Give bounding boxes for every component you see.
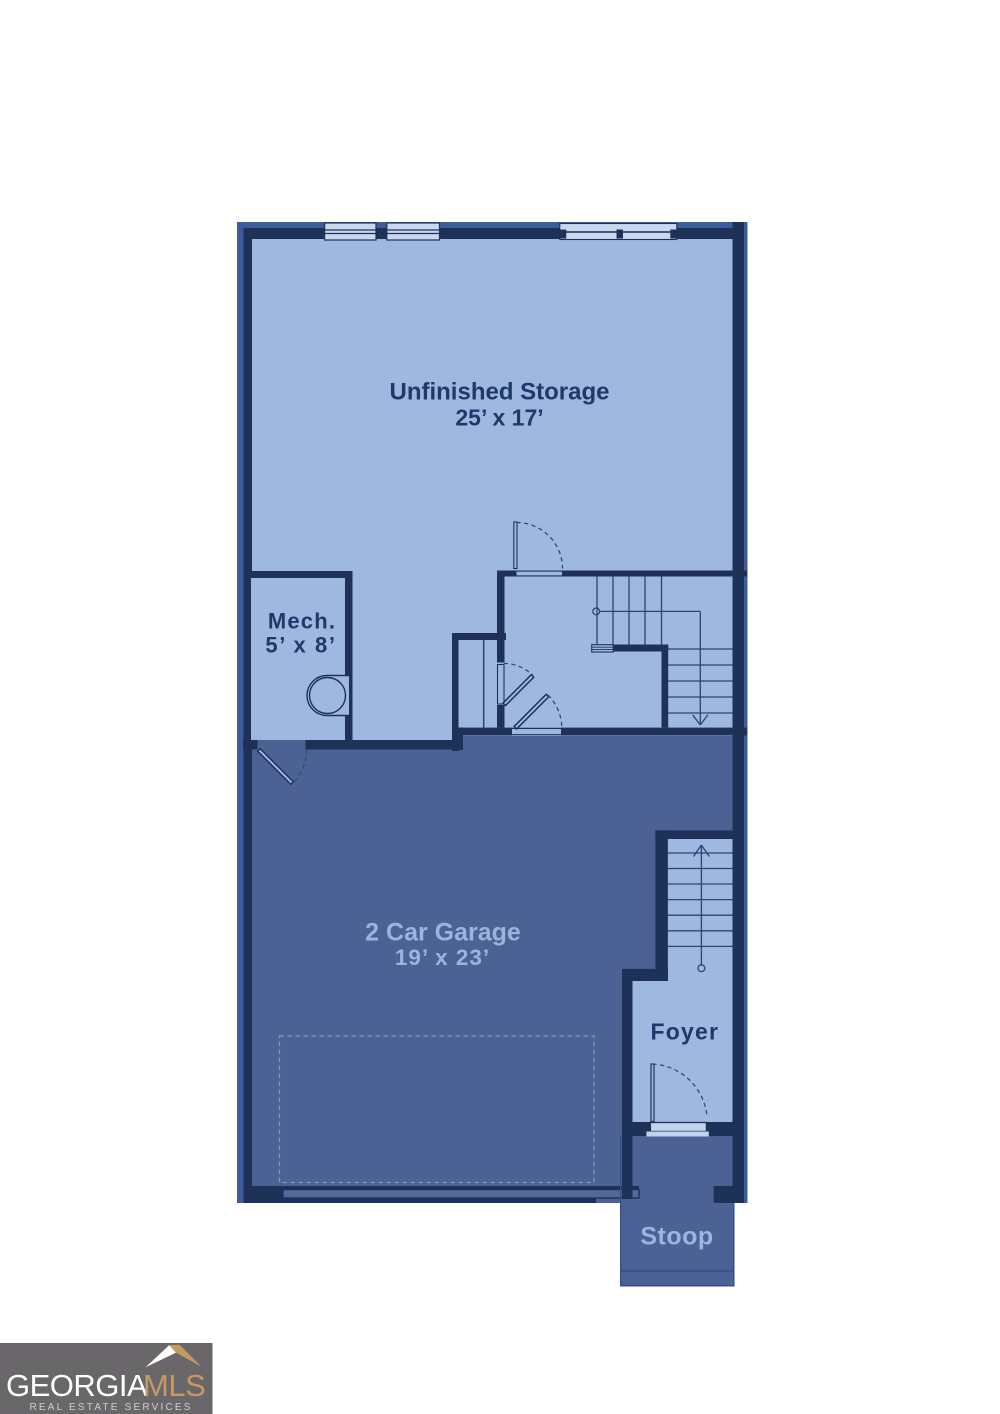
svg-text:REAL ESTATE SERVICES: REAL ESTATE SERVICES [30, 1402, 193, 1413]
svg-text:MLS: MLS [143, 1368, 205, 1403]
svg-text:2 Car Garage: 2 Car Garage [365, 919, 521, 947]
svg-text:GEORGIA: GEORGIA [6, 1368, 148, 1403]
svg-text:5’ x 8’: 5’ x 8’ [265, 633, 336, 658]
svg-text:25’ x 17’: 25’ x 17’ [455, 405, 543, 431]
svg-text:Foyer: Foyer [650, 1019, 719, 1045]
svg-text:Stoop: Stoop [640, 1223, 713, 1251]
svg-text:Mech.: Mech. [268, 609, 336, 634]
svg-text:Unfinished Storage: Unfinished Storage [389, 379, 609, 406]
svg-text:19’ x 23’: 19’ x 23’ [395, 945, 490, 970]
